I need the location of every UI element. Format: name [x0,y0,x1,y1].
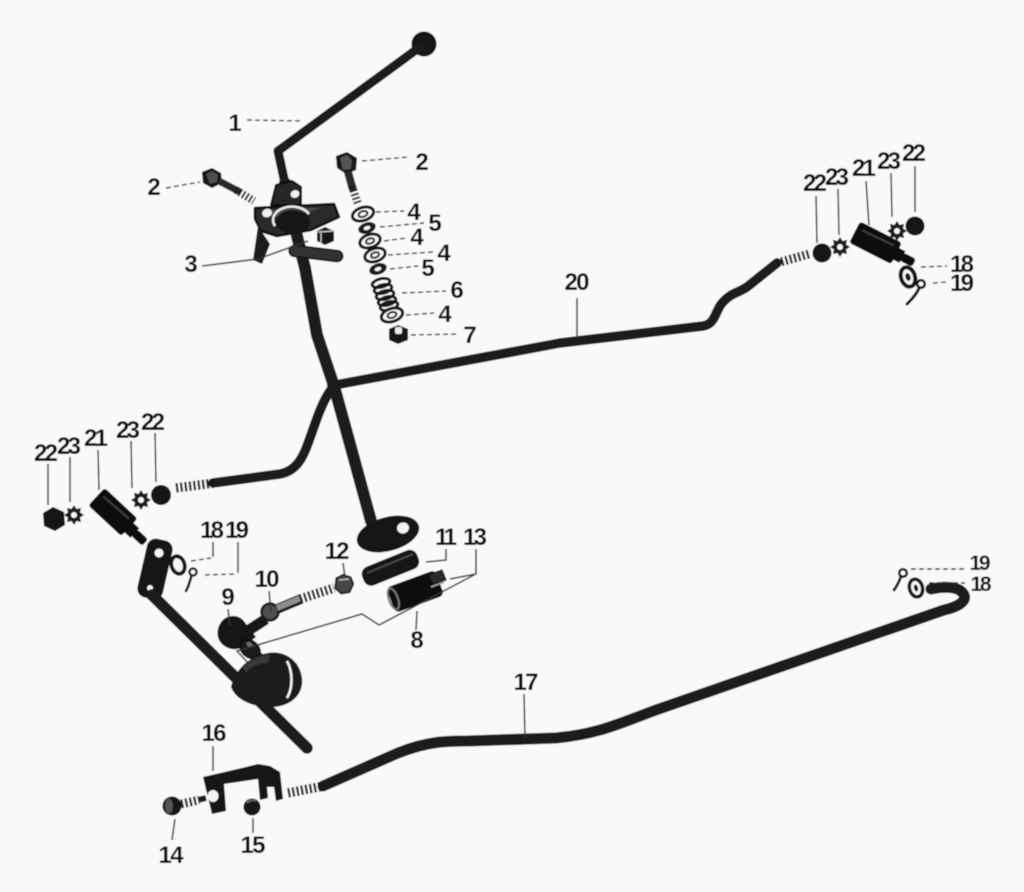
svg-text:12: 12 [325,538,350,565]
svg-text:3: 3 [184,251,197,278]
svg-text:19: 19 [225,517,249,544]
svg-text:17: 17 [514,669,539,696]
svg-text:21: 21 [852,155,876,182]
svg-text:10: 10 [255,566,280,593]
svg-text:8: 8 [410,627,423,654]
svg-text:2: 2 [147,174,160,201]
svg-text:21: 21 [84,425,108,452]
svg-text:4: 4 [407,199,421,226]
svg-text:18: 18 [200,517,224,544]
svg-text:23: 23 [57,433,81,460]
svg-text:14: 14 [159,842,185,869]
svg-text:19: 19 [970,552,991,575]
svg-text:5: 5 [428,210,441,237]
svg-text:4: 4 [437,240,451,267]
svg-text:4: 4 [438,301,452,328]
svg-text:16: 16 [202,720,227,747]
svg-text:9: 9 [221,584,234,611]
svg-text:5: 5 [421,255,434,282]
svg-text:20: 20 [565,269,590,296]
svg-text:13: 13 [463,524,487,551]
svg-text:19: 19 [950,270,974,297]
svg-text:11: 11 [435,524,457,551]
svg-text:22: 22 [902,140,926,167]
svg-text:6: 6 [450,277,463,304]
svg-text:1: 1 [228,110,241,137]
svg-text:22: 22 [34,440,58,467]
svg-text:23: 23 [116,417,140,444]
svg-text:7: 7 [463,322,476,349]
svg-text:15: 15 [241,832,266,859]
svg-text:22: 22 [141,409,165,436]
svg-text:23: 23 [825,164,849,191]
svg-text:22: 22 [803,170,827,197]
svg-text:2: 2 [415,149,428,176]
svg-text:23: 23 [877,148,901,175]
svg-text:4: 4 [410,224,424,251]
svg-text:18: 18 [971,573,992,596]
